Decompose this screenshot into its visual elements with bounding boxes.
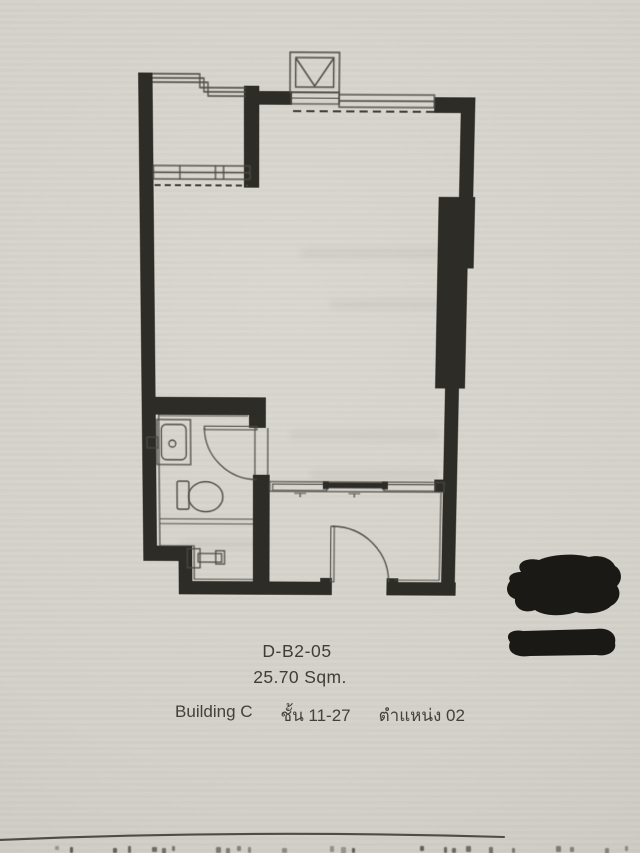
unit-area-label: 25.70 Sqm. <box>0 667 620 688</box>
page-edge-line <box>0 834 504 840</box>
building-label: Building C <box>175 702 253 729</box>
paper-photo-background: D-B2-05 25.70 Sqm. Building C ชั้น 11-27… <box>0 0 640 853</box>
position-label: ตำแหน่ง 02 <box>379 702 465 729</box>
floor-range-label: ชั้น 11-27 <box>281 702 351 729</box>
unit-code-label: D-B2-05 <box>0 641 617 662</box>
building-info-row: Building C ชั้น 11-27 ตำแหน่ง 02 <box>0 702 640 729</box>
redaction-marker-1 <box>507 555 621 616</box>
